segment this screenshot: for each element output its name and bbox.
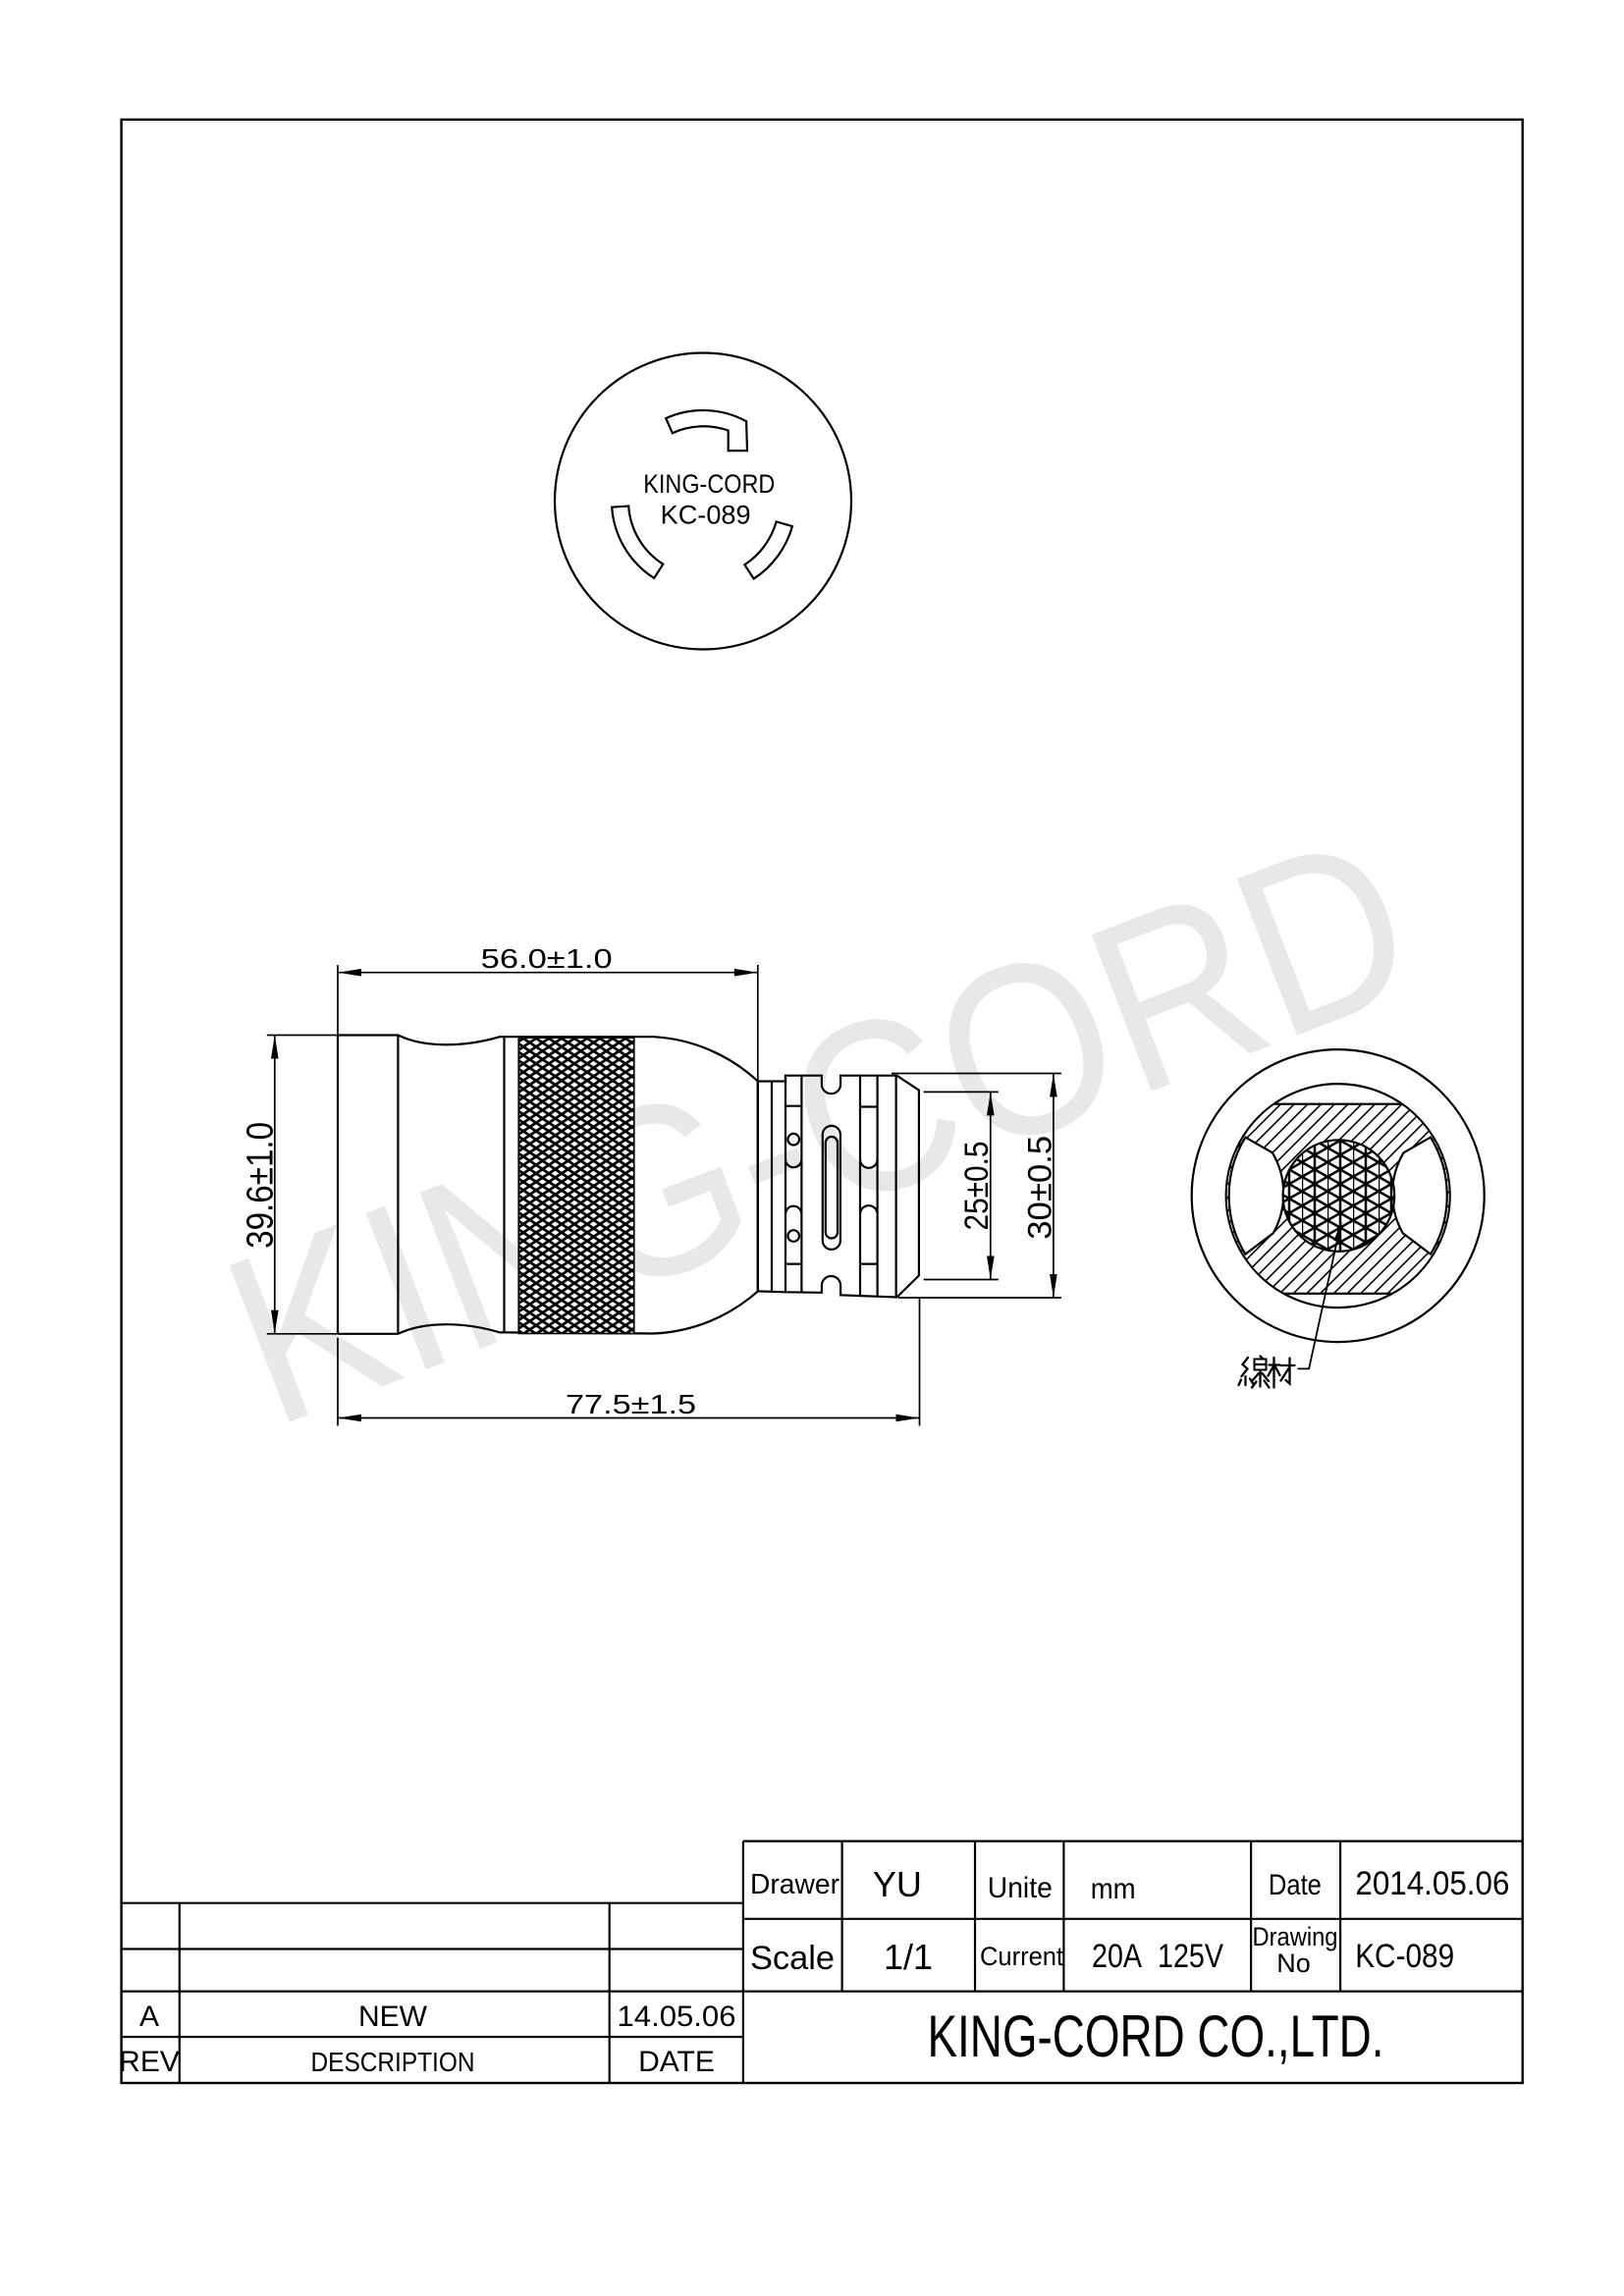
- svg-text:YU: YU: [873, 1864, 922, 1904]
- svg-text:39.6±1.0: 39.6±1.0: [241, 1122, 282, 1249]
- svg-text:Scale: Scale: [750, 1940, 835, 1977]
- svg-text:14.05.06: 14.05.06: [618, 2001, 736, 2033]
- svg-text:2014.05.06: 2014.05.06: [1355, 1865, 1509, 1902]
- svg-text:KING-CORD: KING-CORD: [643, 469, 775, 499]
- svg-text:Current: Current: [980, 1942, 1063, 1971]
- svg-text:NEW: NEW: [358, 2001, 428, 2033]
- svg-text:KC-089: KC-089: [1355, 1938, 1454, 1975]
- svg-text:KC-089: KC-089: [661, 501, 751, 530]
- svg-text:DATE: DATE: [638, 2046, 715, 2078]
- svg-text:20A 125V: 20A 125V: [1092, 1938, 1223, 1975]
- svg-text:Unite: Unite: [988, 1872, 1053, 1904]
- svg-text:Drawing: Drawing: [1253, 1922, 1338, 1951]
- svg-text:A: A: [139, 2001, 159, 2033]
- svg-text:1/1: 1/1: [884, 1937, 933, 1977]
- svg-text:REV: REV: [119, 2046, 180, 2078]
- svg-text:DESCRIPTION: DESCRIPTION: [311, 2047, 475, 2077]
- svg-text:Drawer: Drawer: [750, 1869, 839, 1900]
- svg-text:56.0±1.0: 56.0±1.0: [481, 943, 613, 974]
- svg-text:No: No: [1276, 1949, 1311, 1978]
- svg-text:77.5±1.5: 77.5±1.5: [566, 1389, 696, 1419]
- svg-text:mm: mm: [1091, 1873, 1136, 1905]
- svg-text:Date: Date: [1269, 1869, 1322, 1901]
- svg-text:KING-CORD CO.,LTD.: KING-CORD CO.,LTD.: [928, 2003, 1384, 2069]
- svg-text:30±0.5: 30±0.5: [1022, 1136, 1059, 1240]
- svg-text:25±0.5: 25±0.5: [958, 1142, 996, 1231]
